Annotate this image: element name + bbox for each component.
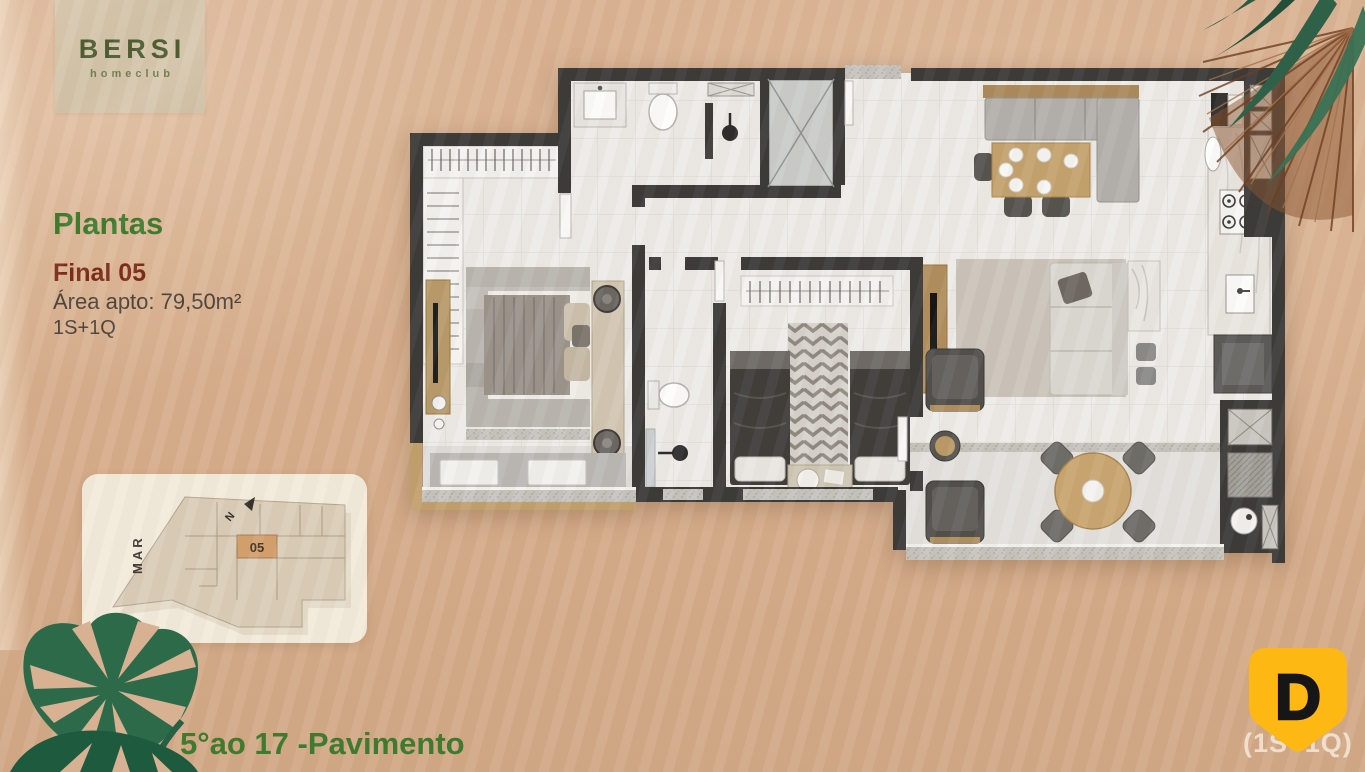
sideboard — [426, 280, 450, 429]
chevron-rug — [788, 323, 848, 485]
badge-letter: D — [1275, 661, 1321, 733]
unit-label: Final 05 — [53, 259, 146, 288]
balcony-wood-edge — [411, 502, 636, 510]
highlighted-unit-number: 05 — [250, 540, 264, 555]
sand-dune-texture — [0, 0, 30, 650]
config-label: 1S+1Q — [53, 317, 116, 340]
entry-mat — [845, 65, 901, 79]
sea-label: MAR — [130, 535, 145, 574]
area-label: Área apto: 79,50m² — [53, 289, 241, 315]
floors-range-label: 5°ao 17 -Pavimento — [180, 726, 465, 762]
entry-door — [845, 81, 853, 125]
brand-name: BERSI — [79, 34, 187, 65]
page-title: Plantas — [53, 206, 163, 242]
floorplan-graphic — [408, 63, 1288, 565]
washer — [1228, 453, 1272, 497]
brand-tagline: homeclub — [90, 68, 174, 80]
flyer-page: BERSI homeclub Plantas Final 05 Área apt… — [0, 0, 1365, 772]
developer-badge: D — [1247, 646, 1349, 756]
balcony-parapet — [411, 489, 636, 502]
terrace-parapet — [906, 546, 1224, 560]
master-balcony — [430, 453, 626, 491]
single-bed — [730, 351, 790, 485]
laundry-sink — [1231, 508, 1257, 534]
palm-leaves-decoration — [1195, 0, 1365, 280]
brand-logo-card: BERSI homeclub — [55, 0, 205, 113]
elevator-shaft — [768, 79, 834, 187]
laundry-area — [1228, 409, 1278, 549]
